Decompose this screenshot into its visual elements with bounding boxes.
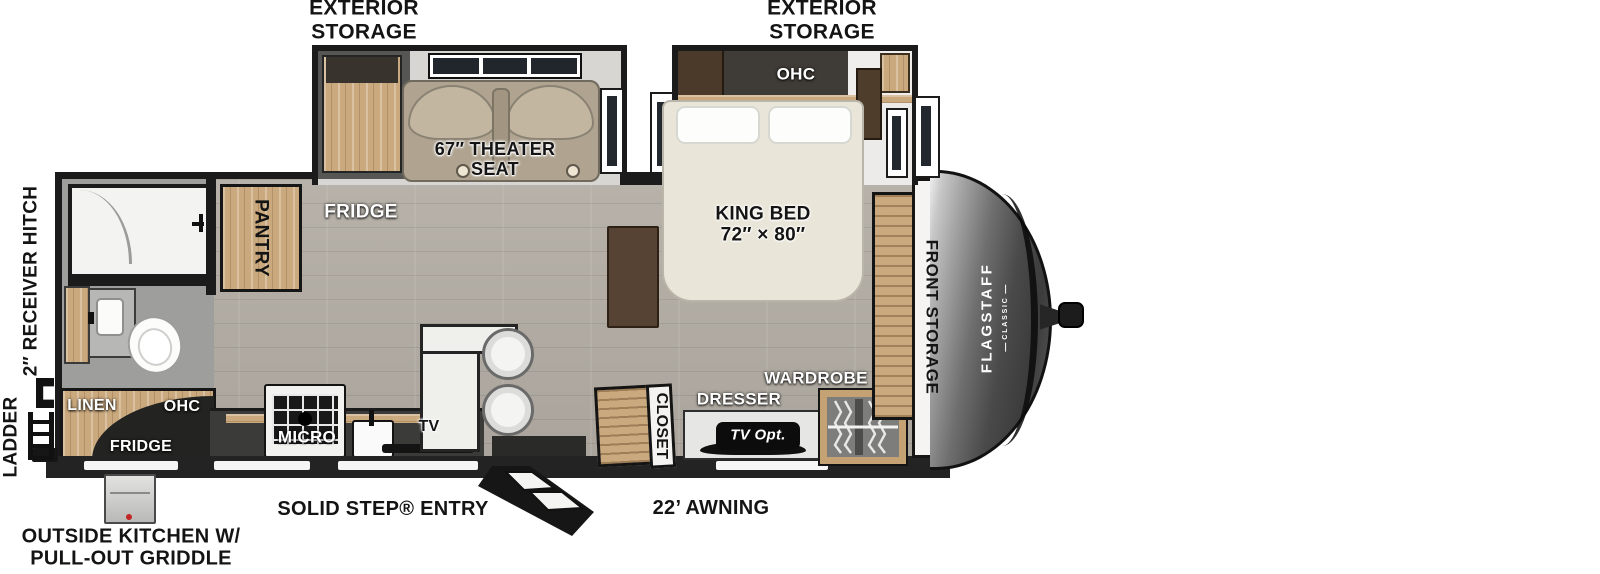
label-closet: CLOSET: [652, 393, 670, 460]
theater-window-glass: [433, 58, 577, 74]
pillow: [768, 106, 852, 144]
vanity-sink: [96, 298, 124, 336]
label-wardrobe: WARDROBE: [764, 368, 867, 387]
slide-fridge-top: [326, 57, 398, 83]
label-tv-option: TV Opt.: [730, 428, 785, 445]
label-micro: MICRO: [278, 427, 336, 446]
brand-classic: CLASSIC: [1002, 281, 1010, 354]
label-pantry: PANTRY: [250, 199, 271, 277]
closet-cabinet: [594, 385, 654, 468]
front-storage-shelves: [872, 192, 916, 420]
brand-flagstaff: FLAGSTAFF: [980, 263, 997, 374]
theater-window-mullion: [479, 58, 483, 74]
brand-series-text: CLASSIC: [1002, 296, 1009, 339]
ladder-icon: [28, 412, 54, 460]
sidewall-window: [214, 461, 310, 470]
sidewall-window: [338, 461, 478, 470]
theater-window-mullion: [527, 58, 531, 74]
label-kitchen-ohc: OHC: [164, 398, 200, 416]
label-line: 72″ × 80″: [715, 225, 810, 246]
bathroom-wall: [206, 179, 216, 295]
sidewall-window: [84, 461, 178, 470]
stool: [482, 328, 534, 380]
label-outside-kitchen: OUTSIDE KITCHEN W/ PULL-OUT GRIDDLE: [22, 526, 241, 571]
bedroom-divider-wall: [607, 226, 659, 328]
label-kitchen-fridge: FRIDGE: [110, 438, 172, 456]
label-line: SEAT: [435, 159, 556, 179]
label-line: EXTERIOR: [767, 0, 877, 20]
theater-side-window: [607, 96, 617, 166]
label-line: PULL-OUT GRIDDLE: [22, 548, 241, 570]
label-line: EXTERIOR: [309, 0, 419, 20]
label-exterior-storage-left: EXTERIOR STORAGE: [309, 0, 419, 44]
label-fridge: FRIDGE: [324, 201, 398, 222]
bedroom-side-window: [892, 116, 901, 170]
griddle-knob: [126, 514, 132, 520]
label-solid-step-entry: SOLID STEP® ENTRY: [277, 498, 488, 520]
label-kitchen-tv: TV: [418, 418, 439, 436]
label-awning: 22’ AWNING: [653, 497, 770, 519]
stove-burner: [298, 412, 312, 426]
rv-floorplan: EXTERIOR STORAGE EXTERIOR STORAGE 2″ REC…: [0, 0, 1600, 574]
label-theater-seat: 67″ THEATER SEAT: [435, 139, 556, 179]
label-king-bed: KING BED 72″ × 80″: [715, 204, 810, 247]
griddle-handle: [110, 492, 150, 494]
label-linen: LINEN: [67, 397, 117, 415]
label-line: 67″ THEATER: [435, 139, 556, 159]
receiver-hitch-icon: [36, 378, 54, 408]
sink-faucet-icon: [369, 410, 374, 426]
cupholder: [566, 164, 580, 178]
front-corner-window: [921, 106, 931, 166]
label-bedroom-ohc: OHC: [777, 64, 816, 83]
label-exterior-storage-right: EXTERIOR STORAGE: [767, 0, 877, 44]
brand-dash: [1005, 343, 1006, 352]
label-receiver-hitch: 2″ RECEIVER HITCH: [20, 186, 41, 377]
stool: [482, 384, 534, 436]
label-ladder: LADDER: [0, 397, 21, 478]
bath-divider-wall: [68, 276, 210, 286]
sidewall-window: [716, 461, 828, 470]
hitch-coupler: [1058, 302, 1084, 328]
shower-faucet-icon-stem: [199, 214, 203, 232]
label-front-storage: FRONT STORAGE: [922, 240, 941, 395]
entry-steps: [478, 466, 602, 538]
vanity-cabinet: [64, 286, 90, 364]
vanity-faucet-icon: [88, 312, 94, 324]
label-line: OUTSIDE KITCHEN W/: [22, 526, 241, 548]
brand-dash: [1005, 284, 1006, 293]
label-line: STORAGE: [309, 20, 419, 44]
bedroom-shelf: [880, 53, 910, 93]
label-line: STORAGE: [767, 20, 877, 44]
label-dresser: DRESSER: [697, 389, 781, 408]
label-line: KING BED: [715, 204, 810, 225]
bedroom-ohc-end-cabinet: [678, 51, 724, 95]
pillow: [676, 106, 760, 144]
